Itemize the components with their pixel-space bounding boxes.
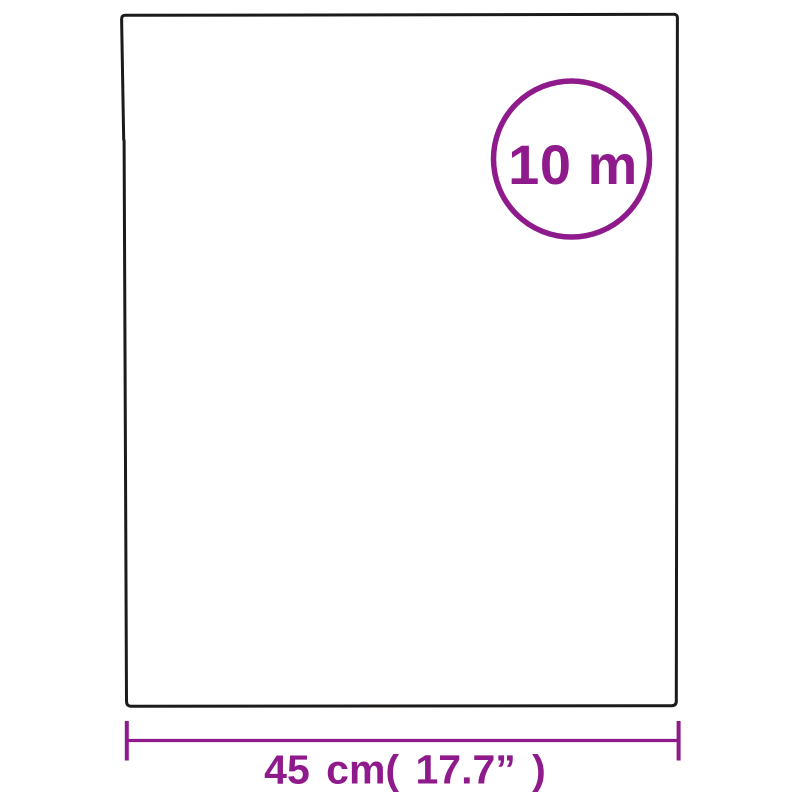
product-dimension-diagram: 10 m 45 cm( 17.7” ) [0,0,800,800]
width-dimension-label: 45 cm( 17.7” ) [264,750,546,791]
length-badge-label: 10 m [508,137,638,193]
diagram-canvas [0,0,800,800]
film-sheet-outline [122,14,678,706]
